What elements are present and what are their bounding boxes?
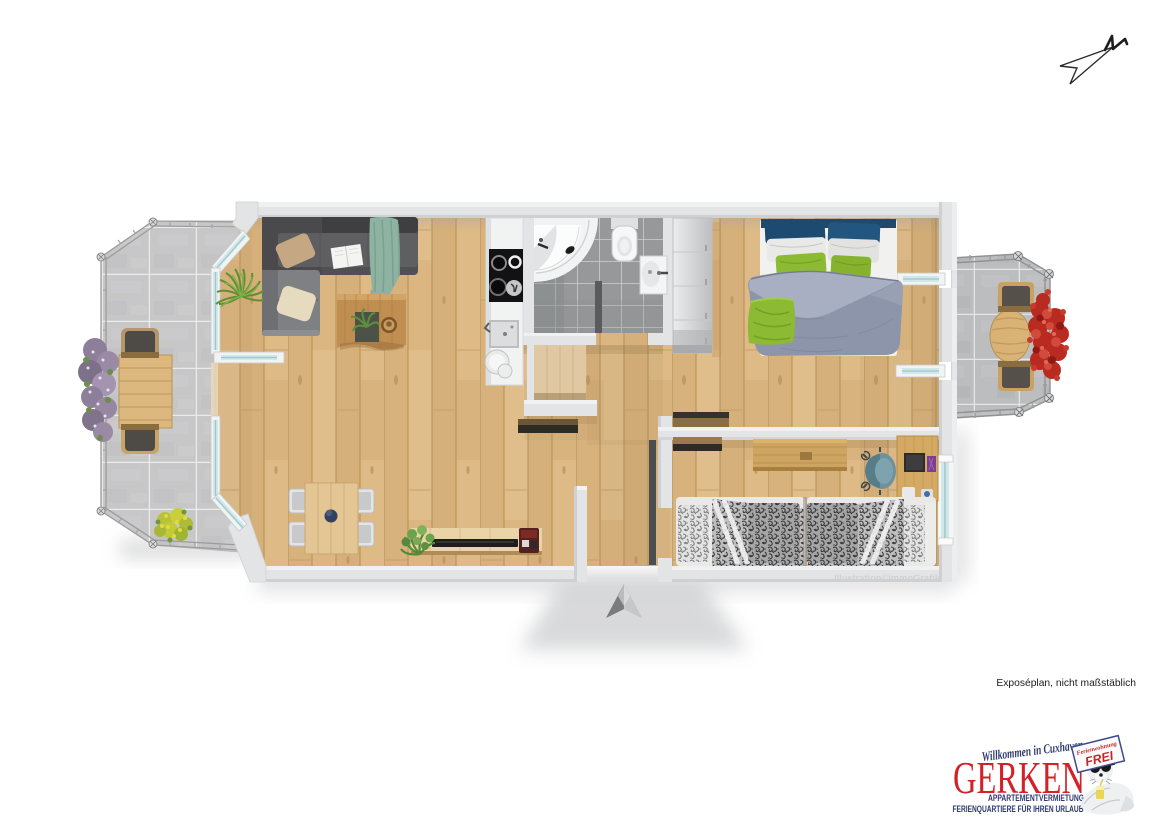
svg-text:FERIENQUARTIERE FÜR IHREN URLA: FERIENQUARTIERE FÜR IHREN URLAUB: [953, 804, 1084, 814]
svg-text:Exposéplan, nicht maßstäblich: Exposéplan, nicht maßstäblich: [996, 678, 1136, 689]
svg-text:APPARTEMENTVERMIETUNG: APPARTEMENTVERMIETUNG: [988, 793, 1084, 803]
svg-text:Illustration©immoGrafik: Illustration©immoGrafik: [834, 573, 941, 583]
